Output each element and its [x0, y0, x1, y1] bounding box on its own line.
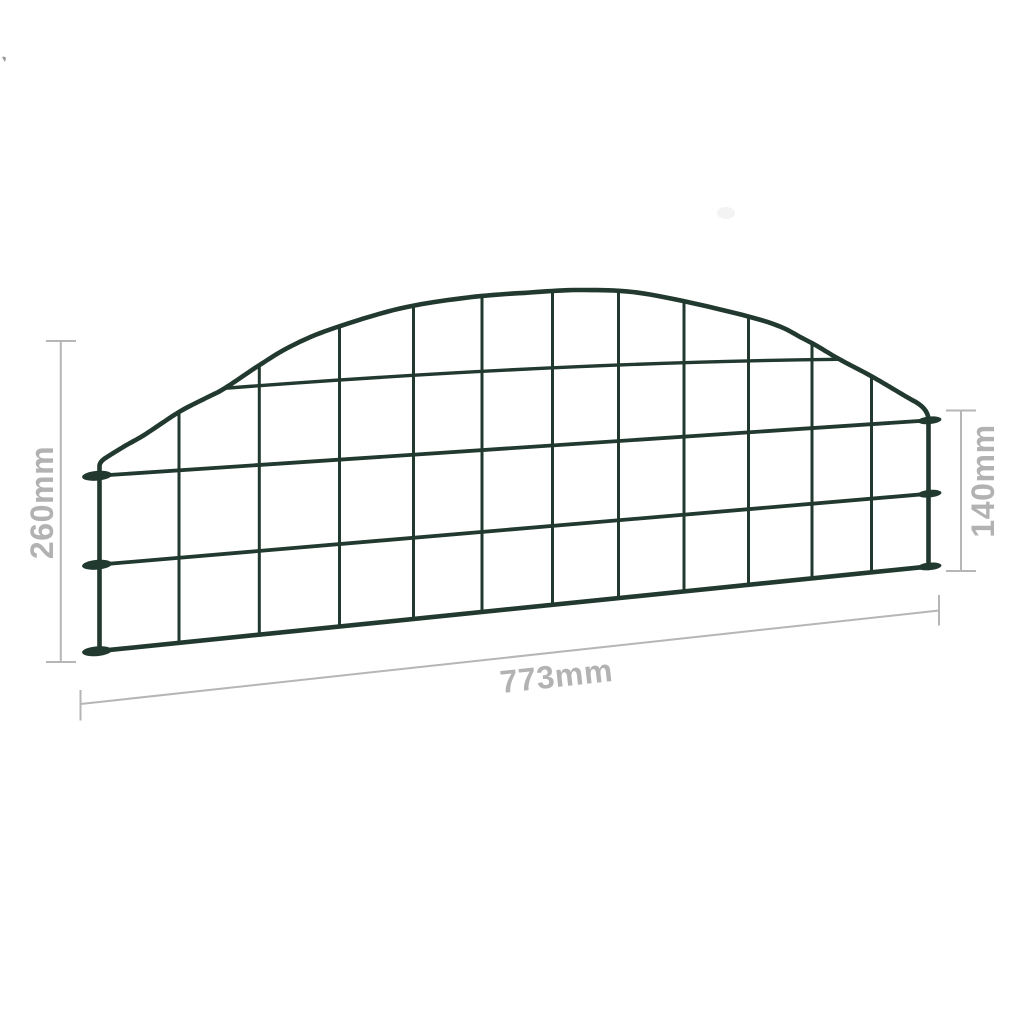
svg-text:140mm: 140mm — [965, 424, 1001, 537]
svg-text:260mm: 260mm — [24, 446, 60, 559]
